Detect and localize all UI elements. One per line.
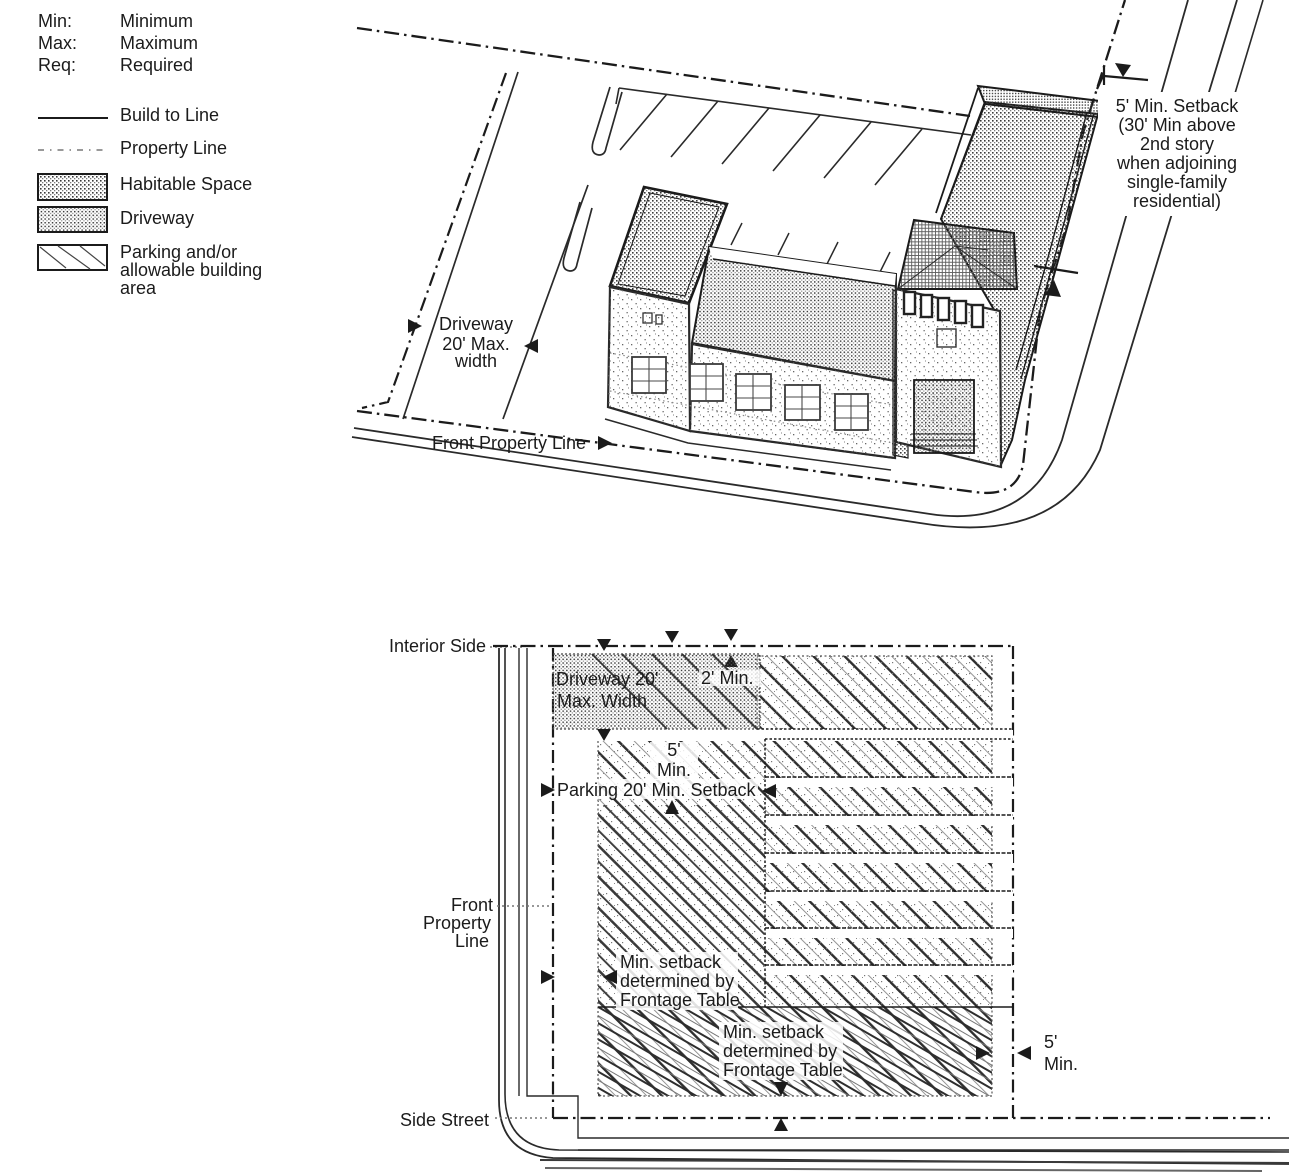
svg-text:Driveway 20': Driveway 20' <box>556 669 658 689</box>
svg-text:Parking 20' Min. Setback: Parking 20' Min. Setback <box>557 780 757 800</box>
svg-text:5' Min. Setback: 5' Min. Setback <box>1116 96 1239 116</box>
svg-text:Parking and/or: Parking and/or <box>120 242 237 262</box>
svg-text:5': 5' <box>1044 1032 1057 1052</box>
svg-text:Maximum: Maximum <box>120 33 198 53</box>
svg-text:5': 5' <box>667 740 680 760</box>
svg-text:Front: Front <box>451 895 493 915</box>
svg-text:Driveway: Driveway <box>120 208 194 228</box>
svg-text:2' Min.: 2' Min. <box>701 668 753 688</box>
svg-text:Max. Width: Max. Width <box>557 691 647 711</box>
svg-text:(30' Min above: (30' Min above <box>1118 115 1236 135</box>
svg-text:Build to Line: Build to Line <box>120 105 219 125</box>
svg-text:Req:: Req: <box>38 55 76 75</box>
svg-text:determined by: determined by <box>620 971 734 991</box>
svg-text:Min. setback: Min. setback <box>620 952 722 972</box>
svg-text:when adjoining: when adjoining <box>1116 153 1237 173</box>
svg-text:Property Line: Property Line <box>120 138 227 158</box>
svg-text:determined by: determined by <box>723 1041 837 1061</box>
svg-text:Required: Required <box>120 55 193 75</box>
svg-text:allowable building: allowable building <box>120 260 262 280</box>
svg-text:Driveway: Driveway <box>439 314 513 334</box>
svg-text:Max:: Max: <box>38 33 77 53</box>
svg-text:Min:: Min: <box>38 11 72 31</box>
svg-text:Frontage Table: Frontage Table <box>723 1060 843 1080</box>
svg-text:2nd story: 2nd story <box>1140 134 1214 154</box>
svg-text:Min.: Min. <box>1044 1054 1078 1074</box>
svg-text:width: width <box>454 351 497 371</box>
svg-text:single-family: single-family <box>1127 172 1227 192</box>
svg-text:Interior Side: Interior Side <box>389 636 486 656</box>
svg-text:Min.: Min. <box>657 760 691 780</box>
svg-text:Habitable Space: Habitable Space <box>120 174 252 194</box>
svg-text:residential): residential) <box>1133 191 1221 211</box>
svg-text:area: area <box>120 278 157 298</box>
svg-text:Frontage Table: Frontage Table <box>620 990 740 1010</box>
svg-text:Line: Line <box>455 931 489 951</box>
svg-text:Minimum: Minimum <box>120 11 193 31</box>
svg-text:Property: Property <box>423 913 491 933</box>
svg-text:Min. setback: Min. setback <box>723 1022 825 1042</box>
svg-text:Side Street: Side Street <box>400 1110 489 1130</box>
svg-text:Front Property Line: Front Property Line <box>432 433 586 453</box>
